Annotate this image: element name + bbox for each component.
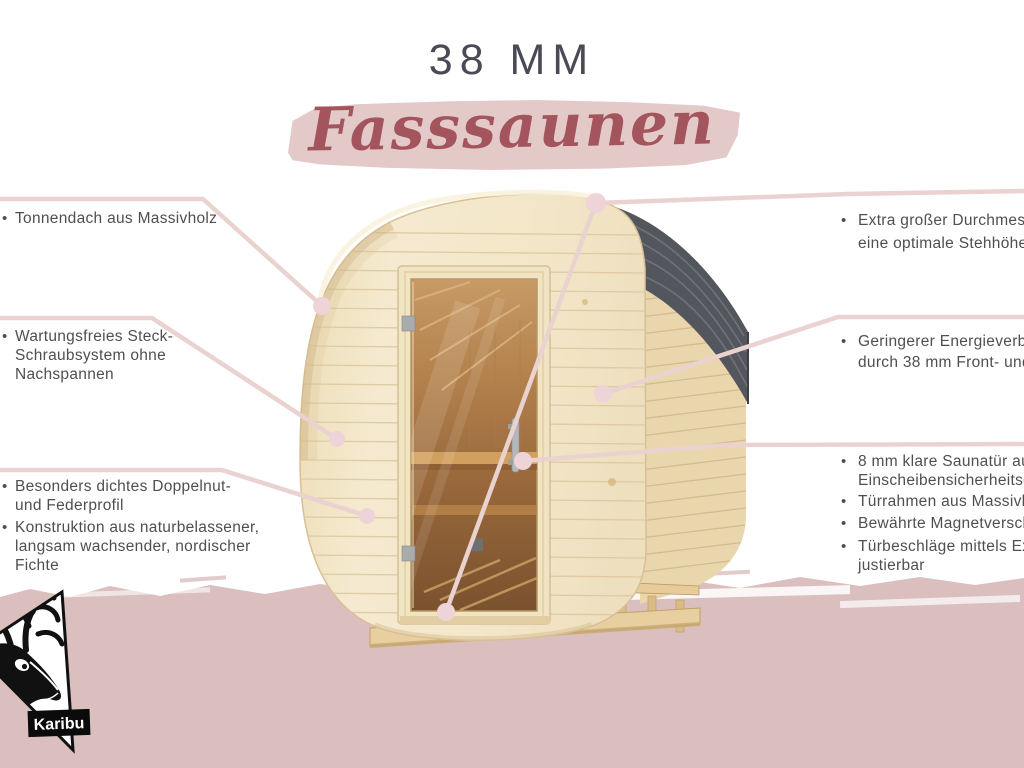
callout-dot [437,603,455,621]
feature-durchmesser: • Extra großer Durchmesser für eine opti… [858,209,1024,255]
feature-text-line: Fichte [15,556,259,575]
feature-text-line: Tonnendach aus Massivholz [15,209,217,228]
callout-dot [586,193,606,213]
feature-text-line: 8 mm klare Saunatür aus [858,452,1024,471]
callout-dot [594,385,612,403]
feature-text-line: eine optimale Stehhöhe [858,232,1024,255]
callout-dot [329,431,345,447]
bullet-icon: • [2,477,8,496]
feature-konstruktion: • Konstruktion aus naturbelassener, lang… [15,518,259,575]
feature-text-line: Türrahmen aus Massivholz [858,492,1024,511]
feature-magnetverschluss: • Bewährte Magnetverschlusstechnik [858,514,1024,533]
feature-text-line: Wartungsfreies Steck- [15,327,173,346]
feature-text-line: Türbeschläge mittels Exzenter [858,537,1024,556]
karibu-logo: Karibu [0,588,110,768]
feature-text-line: Nachspannen [15,365,173,384]
bullet-icon: • [841,331,847,352]
feature-tuerbeschlaege: • Türbeschläge mittels Exzenter justierb… [858,537,1024,575]
callout-dot [359,508,375,524]
callout-line-durchmesser [596,191,1024,203]
feature-text-line: durch 38 mm Front- und Rückwand [858,352,1024,373]
feature-doppelnut: • Besonders dichtes Doppelnut- und Feder… [15,477,231,515]
feature-text-line: Einscheibensicherheitsglas [858,471,1024,490]
poster-page: 38 MM Fasssaunen • Tonnendach aus Massiv… [0,0,1024,768]
callout-dot [313,297,331,315]
feature-text-line: langsam wachsender, nordischer [15,537,259,556]
height-measurement-line [446,203,596,612]
feature-stecksystem: • Wartungsfreies Steck- Schraubsystem oh… [15,327,173,384]
feature-text-line: und Federprofil [15,496,231,515]
feature-energieverbrauch: • Geringerer Energieverbrauch durch 38 m… [858,331,1024,373]
bullet-icon: • [2,518,8,537]
feature-text-line: Schraubsystem ohne [15,346,173,365]
bullet-icon: • [841,452,847,471]
feature-text-line: Bewährte Magnetverschlusstechnik [858,514,1024,533]
callout-dot [514,452,532,470]
bullet-icon: • [841,492,847,511]
feature-saunatuer: • 8 mm klare Saunatür aus Einscheibensic… [858,452,1024,490]
feature-text-line: Extra großer Durchmesser für [858,209,1024,232]
feature-tuerrahmen: • Türrahmen aus Massivholz [858,492,1024,511]
bullet-icon: • [841,514,847,533]
feature-text-line: Besonders dichtes Doppelnut- [15,477,231,496]
bullet-icon: • [841,209,847,232]
feature-text-line: Konstruktion aus naturbelassener, [15,518,259,537]
feature-text-line: Geringerer Energieverbrauch [858,331,1024,352]
bullet-icon: • [841,537,847,556]
feature-tonnendach: • Tonnendach aus Massivholz [15,209,217,228]
size-title: 38 MM [0,36,1024,85]
logo-label: Karibu [28,709,91,737]
brand-name: Karibu [33,715,84,734]
bullet-icon: • [2,209,8,228]
feature-text-line: justierbar [858,556,1024,575]
bullet-icon: • [2,327,8,346]
